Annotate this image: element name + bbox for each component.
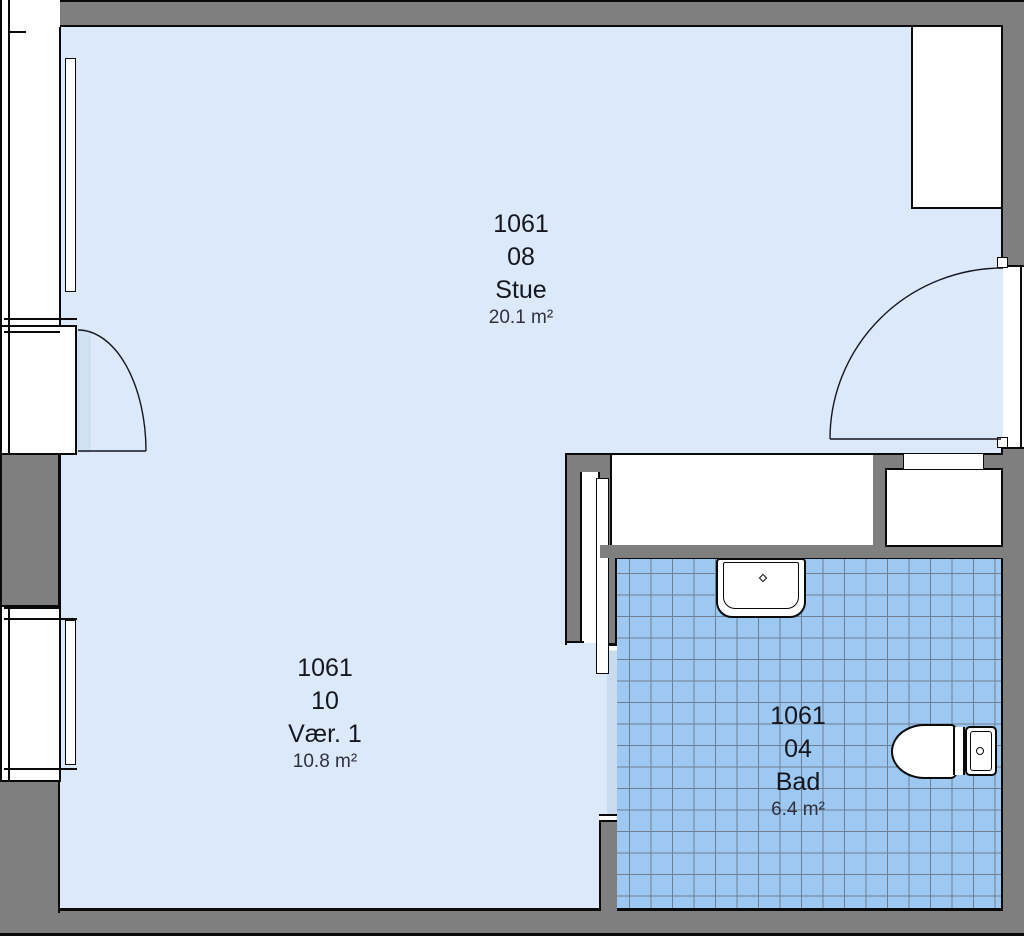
room-name: Vær. 1 — [215, 718, 435, 751]
room-unit: 08 — [411, 241, 631, 274]
room-unit: 04 — [688, 733, 908, 766]
room-label-bad[interactable]: 1061 04 Bad 6.4 m² — [688, 700, 908, 821]
room-area: 6.4 m² — [688, 799, 908, 821]
room-area: 20.1 m² — [411, 307, 631, 329]
sink-basin — [723, 562, 799, 609]
door-swing-arc-right[interactable] — [830, 268, 1003, 439]
room-name: Bad — [688, 766, 908, 799]
toilet-seat-hinge — [953, 727, 965, 775]
room-label-vaer1[interactable]: 1061 10 Vær. 1 10.8 m² — [215, 652, 435, 773]
toilet-flush-button — [976, 747, 984, 755]
room-number: 1061 — [215, 652, 435, 685]
room-unit: 10 — [215, 685, 435, 718]
room-number: 1061 — [411, 208, 631, 241]
toilet-tank[interactable] — [965, 726, 997, 776]
room-area: 10.8 m² — [215, 751, 435, 773]
room-label-stue[interactable]: 1061 08 Stue 20.1 m² — [411, 208, 631, 329]
door-swing-arc-left[interactable] — [78, 330, 146, 451]
room-number: 1061 — [688, 700, 908, 733]
floor-plan: 1061 08 Stue 20.1 m² 1061 10 Vær. 1 10.8… — [0, 0, 1024, 938]
sink[interactable] — [716, 558, 806, 618]
room-name: Stue — [411, 274, 631, 307]
